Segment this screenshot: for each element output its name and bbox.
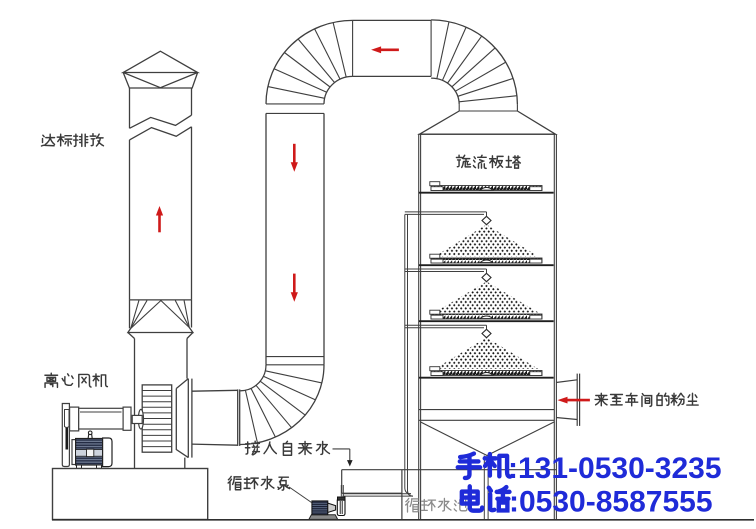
svg-text::131-0530-3235: :131-0530-3235 — [508, 452, 722, 485]
svg-text::0530-8587555: :0530-8587555 — [509, 486, 713, 519]
